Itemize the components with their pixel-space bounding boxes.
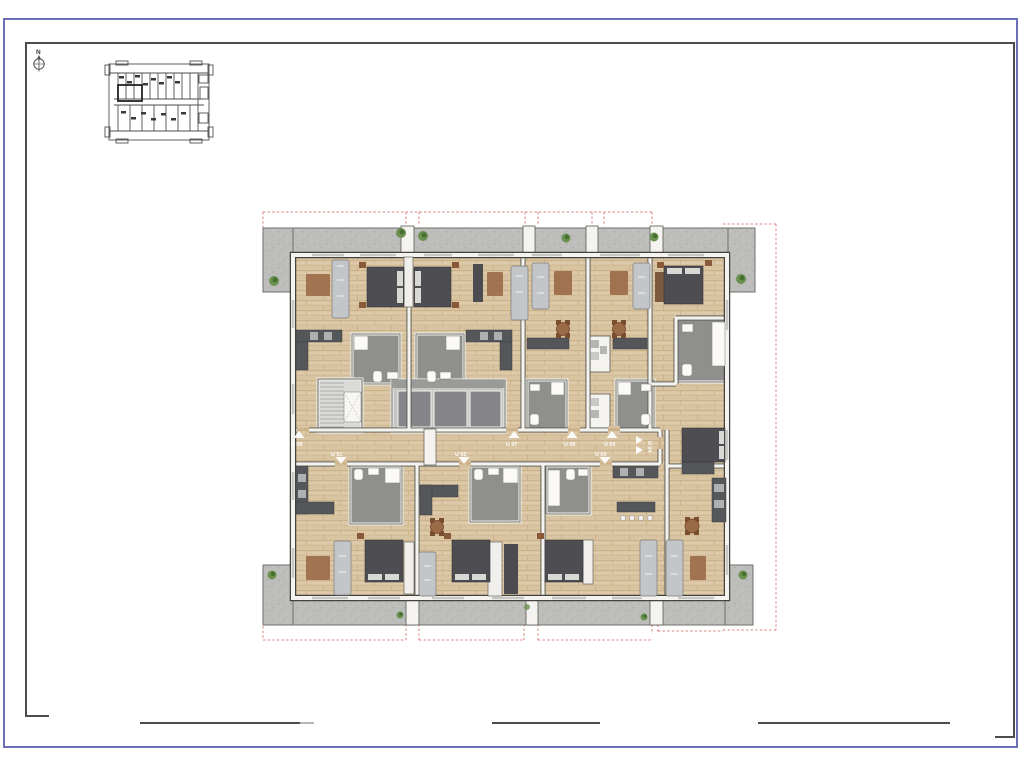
unit-label: U 01 <box>331 452 342 458</box>
unit-label: U 08 <box>291 442 302 448</box>
drawing-page: N <box>0 0 1024 768</box>
elevator-cab <box>434 391 467 427</box>
north-label: N <box>36 49 41 56</box>
key-plan-outline <box>109 64 209 140</box>
unit-label: U 05 <box>604 442 615 448</box>
stair-core <box>318 379 362 432</box>
elevator-cab <box>398 391 431 427</box>
terrace-top <box>263 228 755 255</box>
unit-label: U 07 <box>506 442 517 448</box>
sheet-graphics: N <box>0 0 1024 768</box>
key-plan-furniture <box>119 75 186 121</box>
floor-plan: U 08 U 07 U 06 U 05 U 01 U 02 U 03 U 04 <box>263 212 776 640</box>
elevator-cab <box>470 391 501 427</box>
corridor-stub-wall <box>424 429 436 465</box>
unit-label: U 04 <box>646 441 652 452</box>
key-plan <box>105 61 213 143</box>
terrace-bottom-left <box>263 565 293 625</box>
unit-label: U 06 <box>564 442 575 448</box>
unit-label: U 02 <box>455 452 466 458</box>
unit-label: U 03 <box>595 452 606 458</box>
north-arrow-icon: N <box>34 49 44 72</box>
